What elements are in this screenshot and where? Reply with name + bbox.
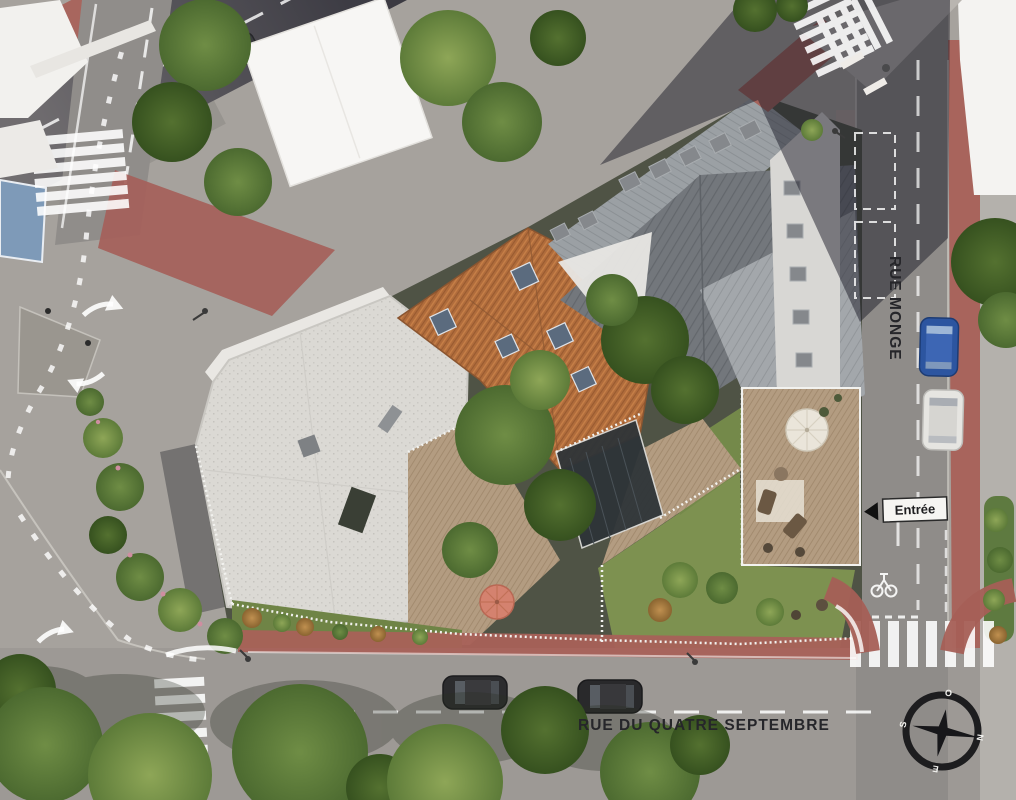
umbrella-red bbox=[480, 585, 514, 619]
trash-bin bbox=[882, 64, 890, 72]
site-plan-canvas: RUE MONGE RUE DU QUATRE SEPTEMBRE Entrée… bbox=[0, 0, 1016, 800]
bus-lane-blue-zone bbox=[0, 180, 46, 262]
sidewalk-planter-tree bbox=[801, 119, 823, 141]
entrance-sign-label: Entrée bbox=[894, 501, 935, 517]
traffic-light-pole bbox=[85, 340, 91, 346]
site-plan-stage: RUE MONGE RUE DU QUATRE SEPTEMBRE Entrée… bbox=[0, 0, 1016, 800]
car-white-monge bbox=[922, 389, 964, 450]
street-label-rue-monge: RUE MONGE bbox=[886, 256, 903, 361]
car-blue-monge bbox=[919, 317, 959, 376]
traffic-light-pole bbox=[45, 308, 51, 314]
street-label-rue-du-quatre-septembre: RUE DU QUATRE SEPTEMBRE bbox=[578, 717, 830, 734]
